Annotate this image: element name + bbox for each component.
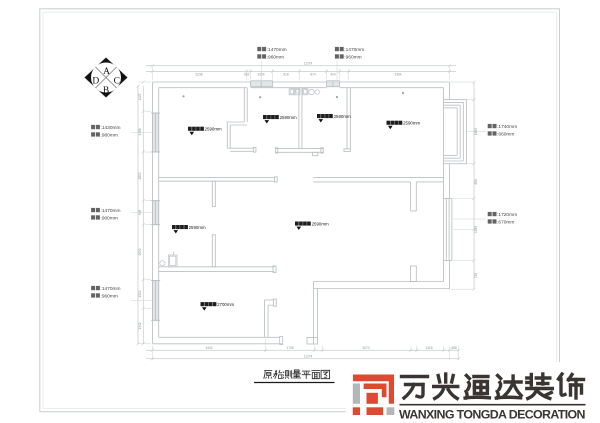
svg-text:1852: 1852 [138, 172, 142, 179]
svg-text::960mm: :960mm [101, 293, 118, 299]
svg-text:1708: 1708 [286, 346, 293, 350]
svg-text:3440: 3440 [205, 346, 212, 350]
svg-text:3070: 3070 [362, 346, 369, 350]
svg-text:C: C [114, 77, 120, 87]
svg-text:424: 424 [330, 73, 336, 77]
svg-text:WANXING TONGDA DECORATION: WANXING TONGDA DECORATION [399, 407, 586, 421]
svg-text::1470mm: :1470mm [267, 47, 287, 53]
svg-text::1470mm: :1470mm [101, 286, 121, 292]
svg-text::660mm: :660mm [497, 131, 514, 137]
svg-text:688: 688 [451, 346, 457, 350]
svg-text::1470mm: :1470mm [344, 47, 364, 53]
svg-text:728: 728 [474, 273, 478, 279]
svg-text:11274: 11274 [304, 62, 313, 66]
svg-text:D: D [92, 77, 99, 87]
svg-text:874: 874 [310, 73, 316, 77]
svg-text:A: A [103, 67, 110, 77]
svg-text:1342: 1342 [138, 322, 142, 329]
svg-text:2092: 2092 [138, 248, 142, 255]
svg-text:1583: 1583 [474, 226, 478, 233]
svg-text:888: 888 [474, 179, 478, 185]
svg-text::1470mm: :1470mm [101, 208, 121, 214]
svg-text:908: 908 [138, 210, 142, 216]
svg-text::900mm: :900mm [101, 215, 118, 221]
svg-text::960mm: :960mm [267, 54, 284, 60]
svg-text:B: B [103, 86, 109, 96]
svg-text:618: 618 [244, 73, 250, 77]
svg-text::960mm: :960mm [344, 54, 361, 60]
svg-text:3238: 3238 [195, 73, 202, 77]
svg-text:1122: 1122 [138, 93, 142, 100]
svg-text:2590mm: 2590mm [312, 221, 329, 226]
svg-text::1430mm: :1430mm [101, 125, 121, 131]
svg-text::670mm: :670mm [497, 219, 514, 225]
svg-text:1512: 1512 [138, 290, 142, 297]
svg-text:1488: 1488 [138, 128, 142, 135]
svg-text::1720mm: :1720mm [497, 212, 517, 218]
svg-text::980mm: :980mm [101, 132, 118, 138]
svg-text:11274: 11274 [304, 355, 313, 359]
svg-text:818: 818 [283, 73, 289, 77]
svg-text:2590mm: 2590mm [334, 114, 351, 119]
svg-text:2590mm: 2590mm [189, 225, 206, 230]
svg-text::1740mm: :1740mm [497, 124, 517, 130]
svg-text:2590mm: 2590mm [205, 127, 222, 132]
svg-text:3394: 3394 [394, 73, 401, 77]
svg-text:2700mm: 2700mm [217, 302, 234, 307]
svg-text:1418: 1418 [425, 346, 432, 350]
svg-text:2590mm: 2590mm [403, 121, 420, 126]
svg-text:2590mm: 2590mm [280, 115, 297, 120]
